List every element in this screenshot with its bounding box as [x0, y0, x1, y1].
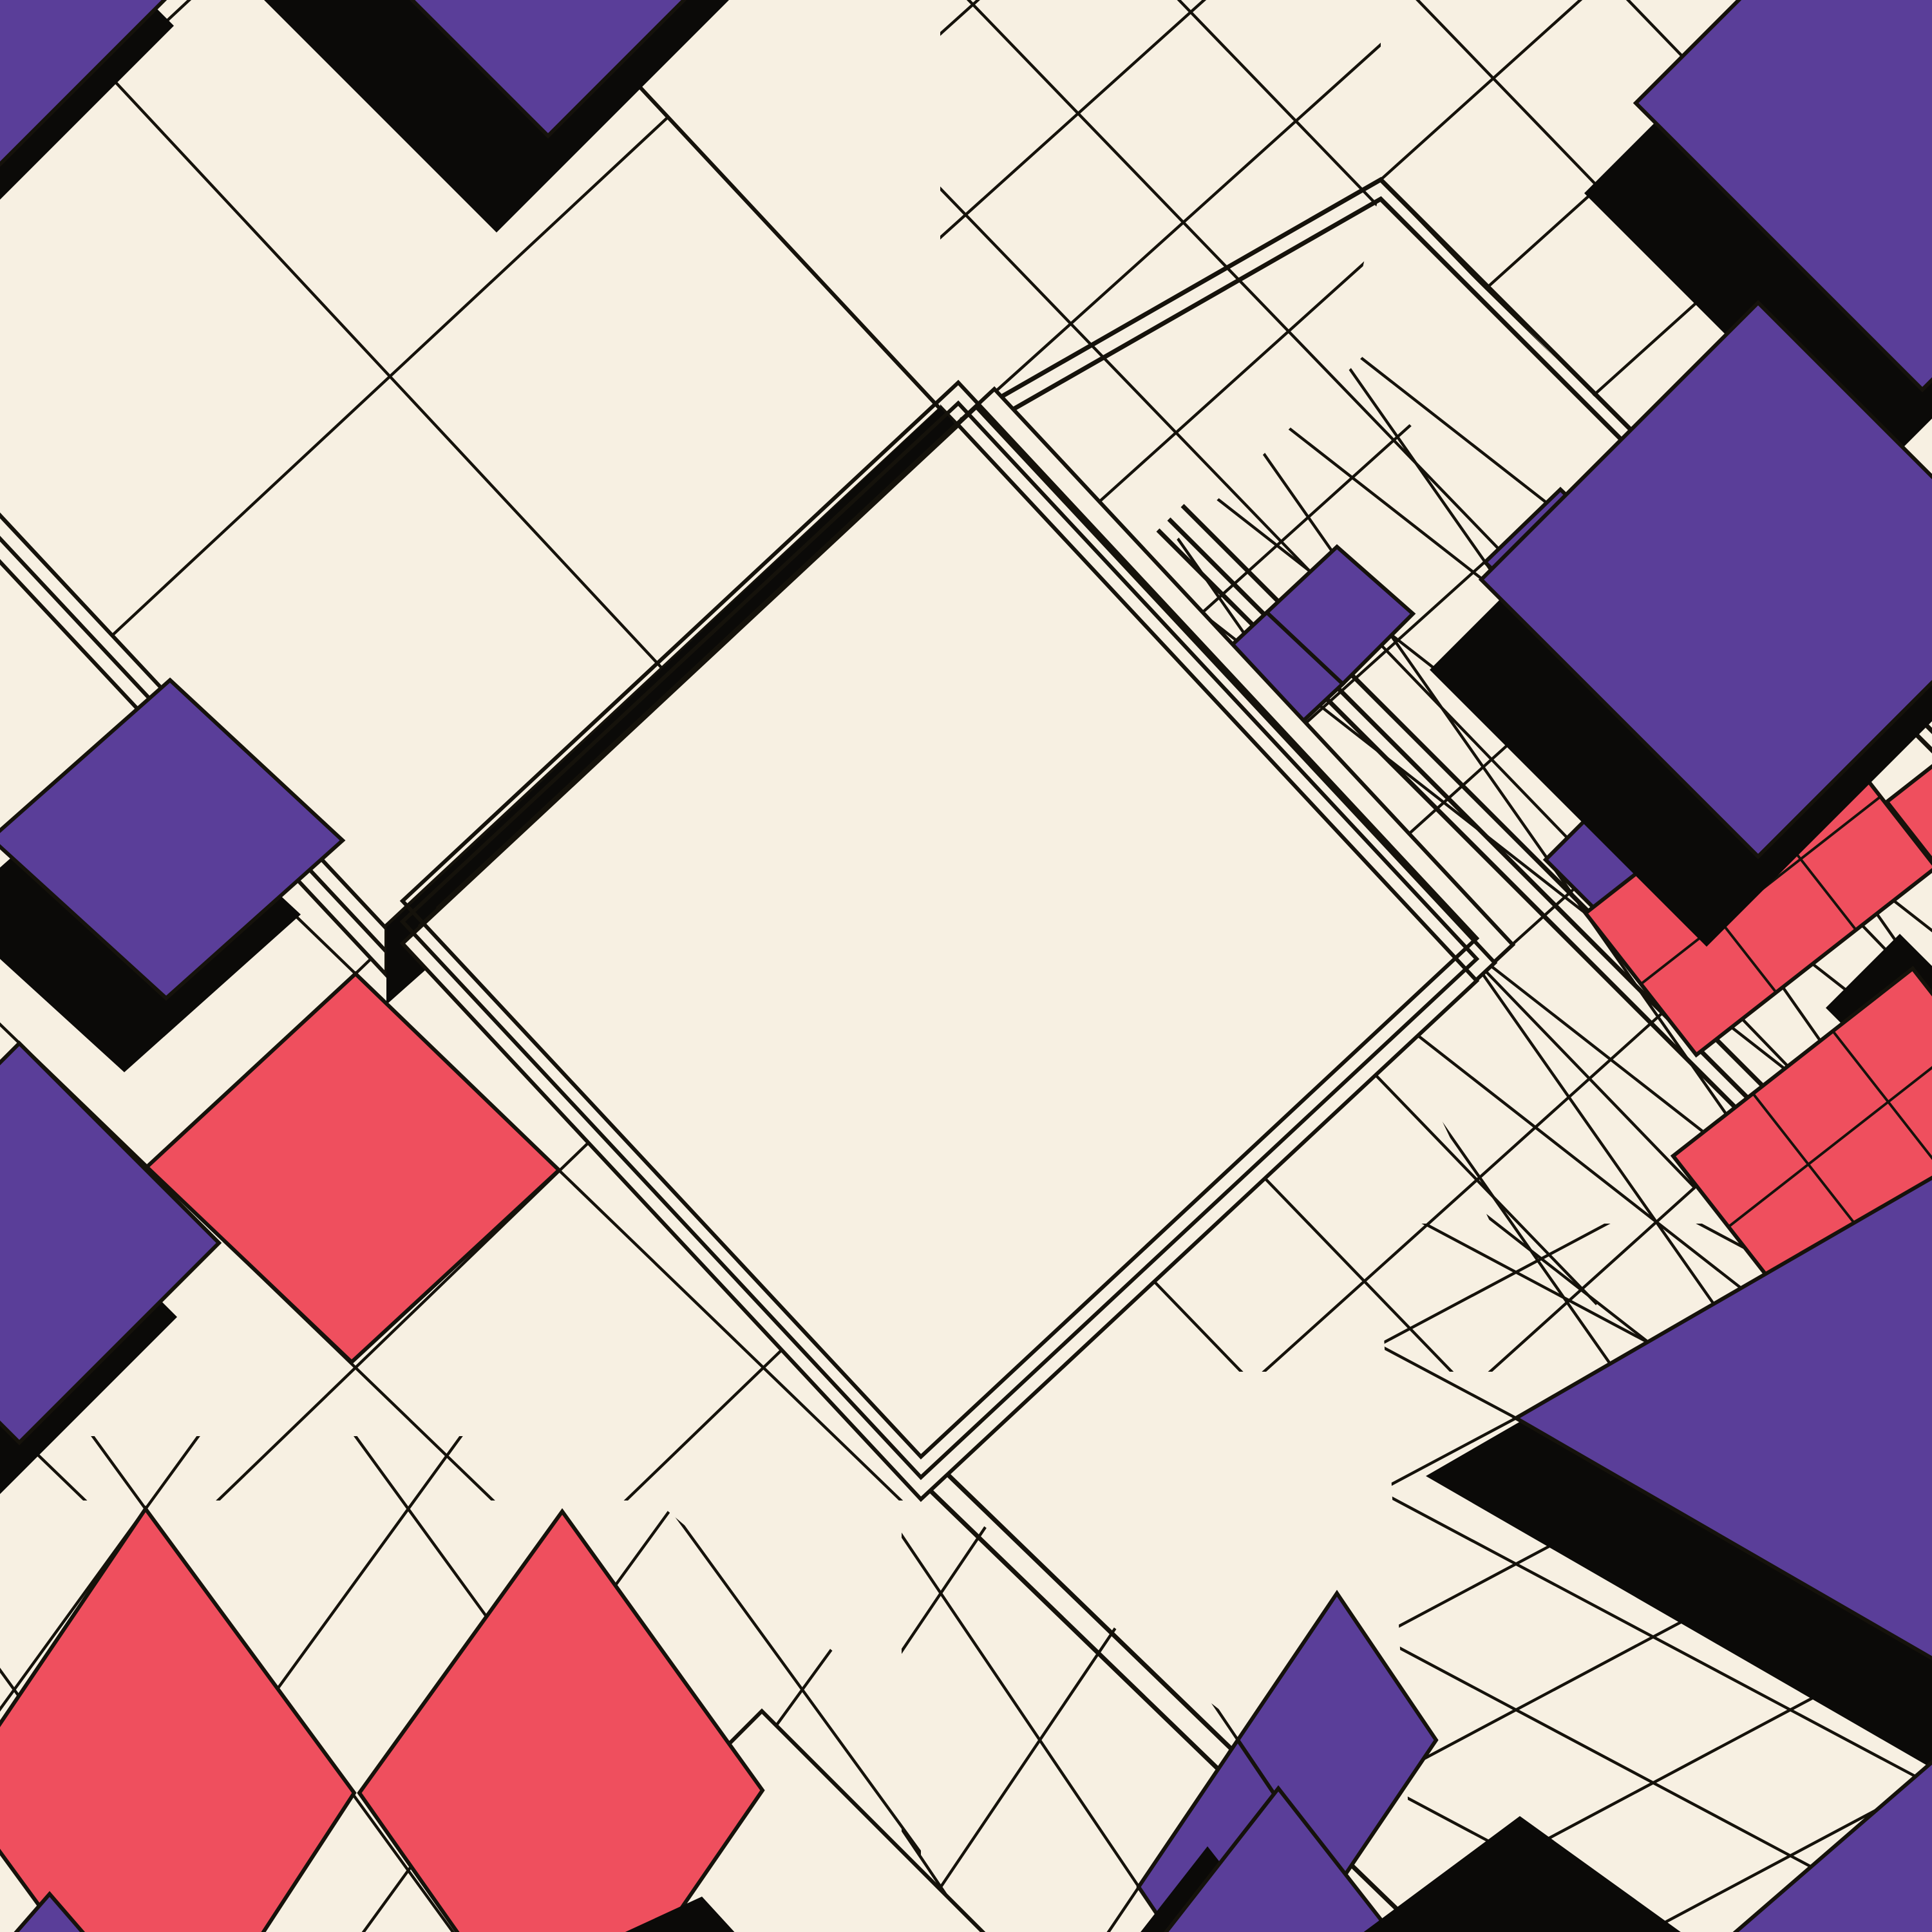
abstract-geometric-artwork [0, 0, 1932, 1932]
composition-canvas [0, 0, 1932, 1932]
